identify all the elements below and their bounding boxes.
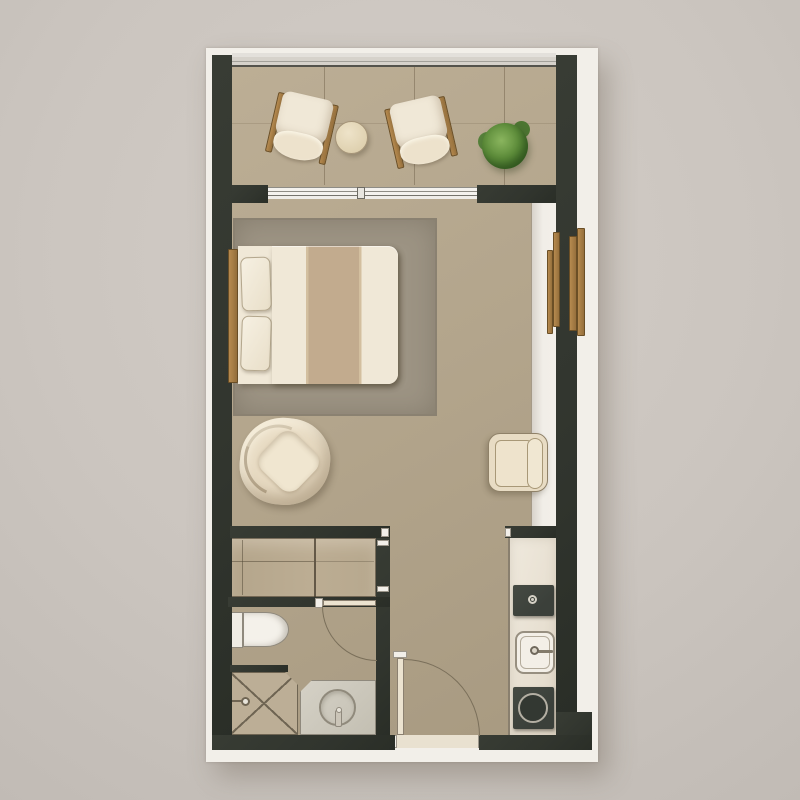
- shower-partition-wall: [230, 665, 288, 672]
- cooktop-burner-icon: [518, 693, 548, 723]
- wall-right: [556, 55, 577, 715]
- bed-pillow-bottom: [240, 315, 272, 371]
- bed-headboard: [228, 249, 238, 383]
- entry-door-leaf: [397, 658, 404, 735]
- sliding-door-handle: [357, 187, 365, 199]
- potted-plant: [482, 123, 528, 169]
- closet-shelf-line: [230, 561, 314, 562]
- entry-threshold: [395, 735, 479, 748]
- swivel-armchair: [236, 414, 335, 510]
- wall-bedroom-divider: [230, 526, 390, 538]
- wall-sliding-door-left: [232, 185, 268, 203]
- sink-faucet-knob: [530, 646, 539, 655]
- cube-armchair-armrest: [527, 438, 543, 489]
- shower-valve-icon: [241, 697, 250, 706]
- cooktop: [513, 687, 554, 729]
- wall-bottom-right: [479, 735, 592, 750]
- entry-door-frame-cap: [393, 651, 407, 658]
- side-table: [335, 121, 368, 154]
- toilet-bowl: [243, 612, 289, 647]
- appliance-knob-icon: [528, 595, 537, 604]
- balcony-glass-railing: [232, 53, 556, 67]
- vanity-faucet-knob: [336, 707, 342, 713]
- wall-left: [212, 55, 232, 750]
- plant-foliage: [482, 123, 528, 169]
- bed-pillow-top: [240, 256, 272, 311]
- bed-duvet: [272, 246, 398, 384]
- closet-left-panel-line: [242, 540, 243, 595]
- wardrobe-closet: [228, 538, 376, 597]
- wall-bathroom-right: [376, 538, 390, 735]
- kitchen-appliance: [513, 585, 554, 616]
- wardrobe-handle-batten: [553, 232, 560, 327]
- wall-end-cap-closet-bottom: [377, 586, 389, 592]
- wall-end-cap-kitchen-stub: [505, 528, 511, 537]
- closet-shelf-line-right: [316, 561, 374, 562]
- wall-kitchen-stub: [505, 526, 556, 538]
- wall-batten-outer: [569, 236, 577, 331]
- wall-bottom-left: [212, 735, 395, 750]
- wall-end-cap-divider: [381, 528, 389, 537]
- sliding-glass-door-track: [268, 187, 477, 199]
- cube-armchair: [488, 433, 548, 492]
- floor-plan: [0, 0, 800, 800]
- wall-batten-outer: [577, 228, 585, 336]
- wall-end-cap-closet-top: [377, 540, 389, 546]
- wall-sliding-door-right: [477, 185, 556, 203]
- shower: [230, 672, 298, 735]
- closet-panel-divider: [314, 538, 316, 597]
